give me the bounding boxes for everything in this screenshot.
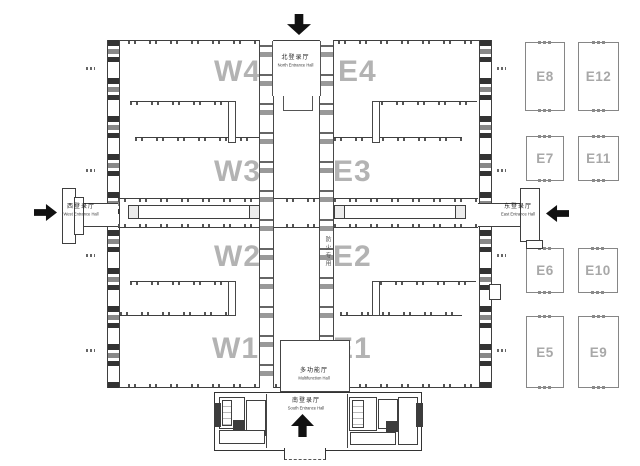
annex-room xyxy=(214,403,221,427)
hall-label-e3: E3 xyxy=(333,155,372,189)
grid-mark-icon xyxy=(86,169,95,172)
divider-step xyxy=(372,281,380,316)
grid-mark-icon xyxy=(497,169,506,172)
outdoor-hall-e10: E10 xyxy=(578,248,618,293)
west-entrance-label: 西登录厅 West Entrance Hall xyxy=(56,204,106,218)
grid-mark-icon xyxy=(86,67,95,70)
west-entrance-arrow-icon xyxy=(34,204,57,221)
corridor-south-wall xyxy=(118,222,478,228)
west-moving-walkway xyxy=(128,205,260,219)
east-moving-walkway xyxy=(334,205,466,219)
corridor-north-wall xyxy=(118,198,478,204)
north-entrance-label: 北登录厅 North Entrance Hall xyxy=(272,55,319,69)
divider-wall xyxy=(334,137,462,143)
north-entrance-hall-step xyxy=(283,96,313,111)
hall-label-w4: W4 xyxy=(214,55,261,89)
grid-mark-icon xyxy=(497,254,506,257)
divider-step xyxy=(372,101,380,143)
grid-mark-icon xyxy=(497,67,506,70)
fire-lane-label: 防火专用 xyxy=(321,236,332,310)
exhibition-floor-plan: 防火专用 北登录厅 North Entrance Hall 多功能厅 Multi… xyxy=(0,0,640,466)
annex-room xyxy=(233,420,245,430)
divider-wall xyxy=(120,310,232,316)
east-entrance-hall-step xyxy=(526,240,543,249)
multifunction-hall xyxy=(280,340,350,392)
annex-room xyxy=(398,397,418,445)
north-entrance-arrow-icon xyxy=(287,14,311,35)
annex-room xyxy=(222,400,232,426)
outdoor-hall-e7: E7 xyxy=(526,136,564,181)
divider-step xyxy=(228,281,236,316)
outdoor-hall-e6: E6 xyxy=(526,248,564,293)
divider-wall xyxy=(135,137,262,143)
multifunction-hall-label: 多功能厅 Multifunction Hall xyxy=(280,368,348,382)
annex-room xyxy=(416,403,423,427)
outdoor-hall-e12: E12 xyxy=(578,42,619,111)
east-wall-annex xyxy=(489,284,501,300)
outdoor-hall-e8: E8 xyxy=(525,42,565,111)
annex-room xyxy=(352,400,364,428)
hall-label-w1: W1 xyxy=(212,332,259,366)
divider-step xyxy=(228,101,236,143)
divider-wall xyxy=(130,101,230,107)
grid-mark-icon xyxy=(497,349,506,352)
divider-wall xyxy=(375,101,477,107)
hall-label-w2: W2 xyxy=(214,240,261,274)
divider-wall xyxy=(130,281,232,287)
divider-wall xyxy=(374,281,476,287)
east-entrance-arrow-icon xyxy=(546,205,569,222)
hall-label-e2: E2 xyxy=(333,240,372,274)
grid-mark-icon xyxy=(86,349,95,352)
grid-mark-icon xyxy=(86,254,95,257)
hall-label-e4: E4 xyxy=(338,55,377,89)
annex-room xyxy=(350,432,396,445)
south-entrance-label: 南登录厅 South Entrance Hall xyxy=(266,398,346,412)
hall-label-w3: W3 xyxy=(214,155,261,189)
central-spine-east-strip xyxy=(319,40,334,388)
east-entrance-label: 东登录厅 East Entrance Hall xyxy=(494,204,542,218)
annex-room xyxy=(386,421,398,432)
outdoor-hall-e9: E9 xyxy=(578,316,619,388)
divider-wall xyxy=(340,310,462,316)
outdoor-hall-e5: E5 xyxy=(526,316,564,388)
south-annex-porch xyxy=(284,448,326,460)
outdoor-hall-e11: E11 xyxy=(578,136,619,181)
annex-room xyxy=(219,430,265,444)
